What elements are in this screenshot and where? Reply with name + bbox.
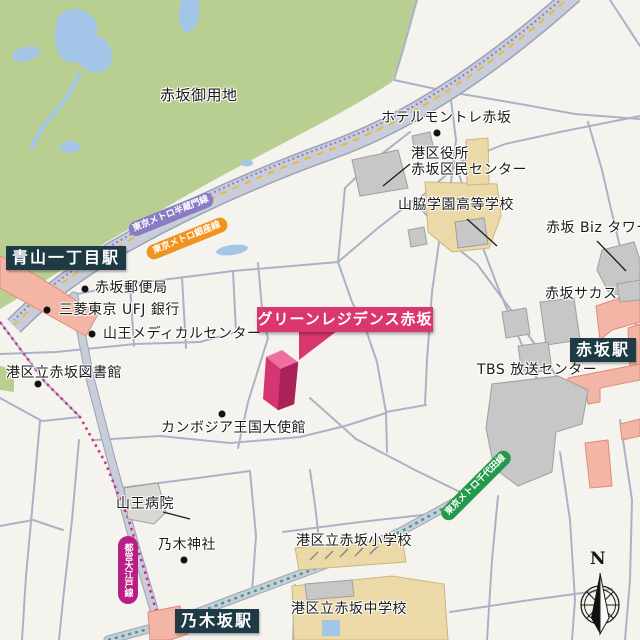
station-badge-aoyama-itchome: 青山一丁目駅: [6, 246, 126, 270]
label-ufj-bank: 三菱東京 UFJ 銀行: [59, 303, 180, 318]
label-ward-office-line1: 港区役所: [411, 147, 469, 162]
station-badge-akasaka: 赤坂駅: [570, 338, 636, 362]
compass-needle-west: [591, 573, 600, 634]
label-sanno-hospital: 山王病院: [116, 497, 174, 512]
label-yamawaki-school: 山脇学園高等学校: [398, 198, 514, 213]
label-hotel-monterey: ホテルモントレ赤坂: [381, 111, 512, 126]
map-screenshot: 赤坂御用地 ホテルモントレ赤坂 港区役所 赤坂区民センター 山脇学園高等学校 赤…: [0, 0, 640, 640]
hospital-leader: [163, 512, 190, 519]
label-nogi-shrine: 乃木神社: [158, 538, 216, 553]
hotel-monterey-dot: [434, 130, 441, 137]
akasaka-station-building: [617, 280, 640, 302]
embassy-dot: [219, 411, 226, 418]
nogi-shrine-dot: [181, 557, 188, 564]
compass-north-label: N: [590, 549, 606, 569]
station-badge-nogizaka: 乃木坂駅: [175, 609, 259, 633]
compass-needle-east: [600, 573, 609, 634]
label-sacas: 赤坂サカス: [545, 287, 618, 302]
sanno-medical-dot: [89, 331, 96, 338]
label-tbs: TBS 放送センター: [477, 363, 597, 378]
compass-rose: [581, 573, 619, 634]
label-imperial-grounds: 赤坂御用地: [160, 88, 238, 103]
label-embassy: カンボジア王国大使館: [161, 421, 306, 436]
label-ward-office-line2: 赤坂区民センター: [411, 163, 527, 178]
sacas-building-2: [502, 308, 530, 338]
small-building-west-campus: [408, 227, 427, 247]
label-sanno-medical: 山王メディカルセンター: [103, 327, 262, 342]
school-pool: [322, 620, 340, 636]
label-post-office: 赤坂郵便局: [95, 281, 168, 296]
property-callout: グリーンレジデンス赤坂: [257, 307, 433, 332]
post-office-dot: [82, 286, 89, 293]
highlight-building: [263, 350, 298, 410]
ufj-bank-dot: [44, 307, 51, 314]
akasaka-station-area-4: [585, 440, 612, 488]
label-elementary-school: 港区立赤坂小学校: [296, 534, 412, 549]
junior-high-building: [305, 580, 354, 600]
line-badge-oedo: 都営大江戸線: [118, 536, 138, 604]
callout-pointer: [299, 331, 337, 360]
library-dot: [35, 381, 42, 388]
label-biz-tower: 赤坂 Biz タワー: [546, 221, 640, 236]
label-library: 港区立赤坂図書館: [6, 366, 122, 381]
label-junior-high-school: 港区立赤坂中学校: [291, 602, 407, 617]
akasaka-station-area-5: [620, 419, 640, 440]
